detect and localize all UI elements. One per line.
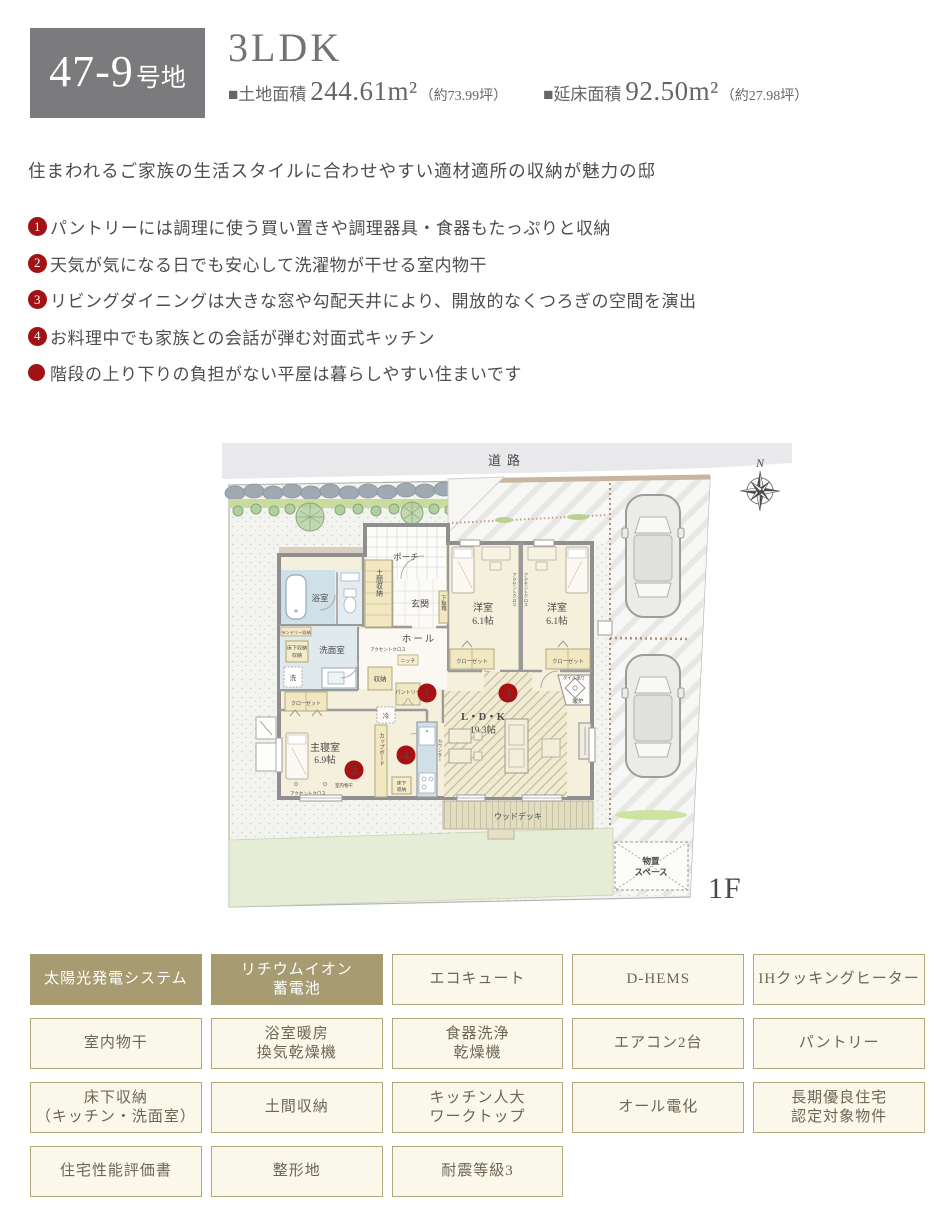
feature-tag: 食器洗浄 乾燥機 [392,1018,564,1069]
floor-area-value: 92.50m² [625,76,718,107]
equipment-tag-grid: 太陽光発電システム リチウムイオン 蓄電池 エコキュート D-HEMS IHクッ… [30,954,925,1197]
cupboard: カップボード [375,725,387,797]
svg-text:L・D・K: L・D・K [461,712,506,723]
svg-text:収納: 収納 [374,674,387,683]
svg-text:室内物干: 室内物干 [335,782,353,789]
feature-item: 3 リビングダイニングは大きな窓や勾配天井により、開放的なくつろぎの空間を演出 [28,289,696,310]
number-badge-4: 4 [28,327,47,346]
svg-text:玄関: 玄関 [411,598,429,609]
vanity [322,668,356,688]
utility-box [598,621,612,635]
area-summary: ■土地面積 244.61m² （約73.99坪） ■延床面積 92.50m² （… [228,76,808,107]
feature-tag: 土間収納 [211,1082,383,1133]
feature-tag: エアコン2台 [572,1018,744,1069]
feature-item: 2 天気が気になる日でも安心して洗濯物が干せる室内物干 [28,253,696,274]
svg-text:N: N [755,456,765,470]
feature-text: リビングダイニングは大きな窓や勾配天井により、開放的なくつろぎの空間を演出 [50,287,696,312]
floor-area-label: ■延床面積 [543,80,621,105]
svg-text:主寝室: 主寝室 [310,741,340,754]
fridge: 冷 [377,707,395,723]
underfloor-storage: 床下収納 床下収納 収納 [286,641,308,662]
feature-tag: 床下収納 （キッチン・洗面室） [30,1082,202,1133]
car-icon [622,655,684,777]
svg-text:6.1帖: 6.1帖 [472,615,494,627]
svg-text:床下: 床下 [397,780,407,787]
niche: ニッチ [398,655,418,665]
svg-text:パントリー: パントリー [395,690,420,696]
svg-text:6.9帖: 6.9帖 [314,754,336,766]
svg-text:下駄箱: 下駄箱 [440,595,446,612]
svg-text:スペース: スペース [635,867,668,877]
svg-text:洗: 洗 [290,673,297,682]
property-sheet: 47-9 号地 3LDK ■土地面積 244.61m² （約73.99坪） ■延… [0,0,950,1229]
svg-text:カップボード: カップボード [378,733,385,767]
svg-text:クローゼット: クローゼット [456,657,488,665]
grass-patch [615,810,687,820]
shoe-cabinet: 下駄箱 [439,591,448,623]
lot-number-box: 47-9 号地 [30,28,205,118]
svg-text:4: 4 [403,748,410,763]
floor-tag: 1F [708,872,742,905]
svg-text:クローゼット: クローゼット [552,657,584,665]
ac-units [256,717,276,771]
land-area-value: 244.61m² [310,76,417,107]
floor-plan: 道路 [222,443,792,928]
svg-text:クローゼット: クローゼット [291,700,321,707]
svg-text:6.1帖: 6.1帖 [546,615,568,627]
feature-tag: 住宅性能評価書 [30,1146,202,1197]
washer: 洗 [284,667,302,687]
feature-text: 天気が気になる日でも安心して洗濯物が干せる室内物干 [50,251,487,276]
feature-item: 1 パントリーには調理に使う買い置きや調理器具・食器もたっぷりと収納 [28,216,696,237]
bullet-icon [28,364,45,381]
feature-tag: 浴室暖房 換気乾燥機 [211,1018,383,1069]
svg-text:カウンター: カウンター [437,739,443,762]
toilet-room [338,570,362,624]
hall-label: ホール [402,634,437,645]
lot-suffix: 号地 [136,58,186,94]
intro-text: 住まわれるご家族の生活スタイルに合わせやすい適材適所の収納が魅力の邸 [28,158,656,183]
feature-item: 4 お料理中でも家族との会話が弾む対面式キッチン [28,326,696,347]
feature-tag: オール電化 [572,1082,744,1133]
feature-text: パントリーには調理に使う買い置きや調理器具・食器もたっぷりと収納 [50,214,611,239]
svg-text:浴室: 浴室 [311,593,329,603]
number-badge-3: 3 [28,290,47,309]
svg-text:ポーチ: ポーチ [393,552,419,562]
feature-tag: IHクッキングヒーター [753,954,925,1005]
floor-area-tsubo: （約27.98坪） [721,85,809,105]
washroom-label: 洗面室 [319,645,345,655]
car-icon [622,495,684,617]
svg-text:暖炉: 暖炉 [572,697,584,705]
hall-storage: 収納 [368,667,392,690]
feature-text: お料理中でも家族との会話が弾む対面式キッチン [50,324,435,349]
svg-text:ニッチ: ニッチ [400,659,415,665]
feature-tag: 室内物干 [30,1018,202,1069]
feature-text: 階段の上り下りの負担がない平屋は暮らしやすい住まいです [50,360,522,385]
svg-text:ウッドデッキ: ウッドデッキ [494,811,542,821]
feature-tag: 太陽光発電システム [30,954,202,1005]
feature-tag: D-HEMS [572,954,744,1005]
feature-tag: キッチン人大 ワークトップ [392,1082,564,1133]
shed-space: 物置 スペース [615,842,688,890]
land-area-tsubo: （約73.99坪） [420,85,508,105]
grass-tuft [567,514,589,520]
feature-tag: パントリー [753,1018,925,1069]
svg-text:タイル張り: タイル張り [563,675,585,682]
land-area-label: ■土地面積 [228,80,306,105]
doma-storage: 土間収納 [365,560,392,627]
lawn [229,828,613,907]
road-label: 道路 [488,453,526,468]
feature-tag: 整形地 [211,1146,383,1197]
grass-tuft [495,517,513,523]
number-badge-2: 2 [28,254,47,273]
number-badge-1: 1 [28,217,47,236]
accent-label: アクセントクロス [513,573,518,607]
feature-tag: 長期優良住宅 認定対象物件 [753,1082,925,1133]
bathroom: 浴室 [281,570,335,624]
plan-type-title: 3LDK [228,24,342,71]
svg-text:収納: 収納 [292,652,302,659]
kitchen-underfloor: 床下 収納 [392,777,411,794]
svg-text:洋室: 洋室 [547,601,567,614]
bedroom-divider-wall [519,543,524,671]
pantry: パントリー [395,683,420,705]
svg-text:床下収納: 床下収納 [287,645,307,652]
svg-text:洋室: 洋室 [473,601,493,614]
laundry-storage: ランドリー収納 [281,627,311,636]
lot-number: 47-9 [49,46,134,97]
feature-tag: リチウムイオン 蓄電池 [211,954,383,1005]
svg-text:物置: 物置 [642,856,660,866]
svg-text:収納: 収納 [397,786,407,793]
feature-tag: 耐震等級3 [392,1146,564,1197]
feature-list: 1 パントリーには調理に使う買い置きや調理器具・食器もたっぷりと収納 2 天気が… [28,216,696,399]
svg-text:ランドリー収納: ランドリー収納 [281,629,310,636]
svg-text:1: 1 [424,686,431,701]
svg-text:2: 2 [351,763,358,778]
svg-text:3: 3 [505,686,512,701]
svg-text:冷: 冷 [383,711,390,720]
feature-item: 階段の上り下りの負担がない平屋は暮らしやすい住まいです [28,362,696,383]
accent-label: アクセントクロス [524,573,529,607]
feature-tag: エコキュート [392,954,564,1005]
